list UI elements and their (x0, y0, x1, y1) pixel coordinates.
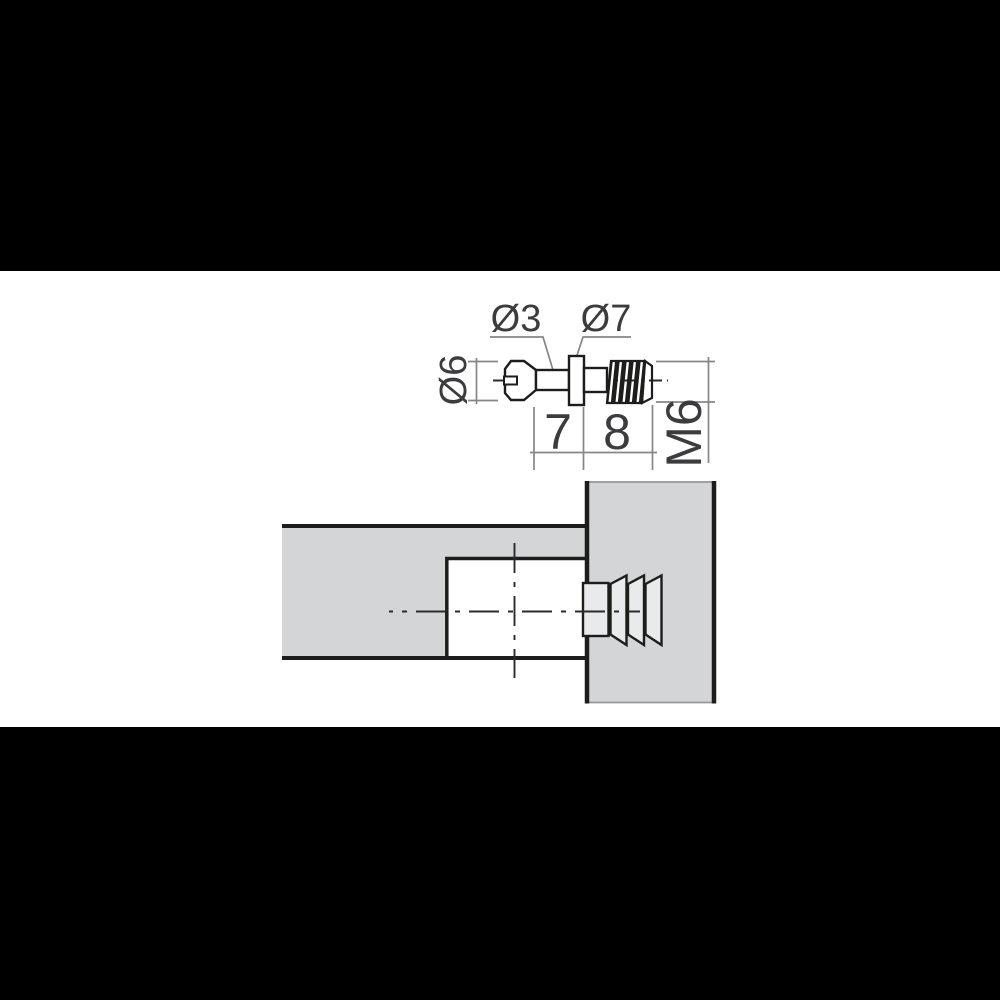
thread-hatching (606, 360, 646, 404)
letterbox-bottom (0, 727, 1000, 1000)
drawing-canvas: Ø3 Ø7 Ø6 7 8 M6 (0, 271, 1000, 727)
technical-drawing: Ø3 Ø7 Ø6 7 8 M6 (0, 271, 1000, 727)
thread-tip (642, 361, 652, 403)
bolt-shank (536, 370, 569, 390)
dim-label-collar-diameter: Ø7 (581, 298, 632, 340)
panel-cavity (447, 557, 585, 658)
dowel-shaft (583, 583, 609, 636)
head-slot (504, 377, 517, 385)
dim-label-shaft-diameter: Ø3 (491, 298, 542, 340)
bolt-shaft (584, 368, 607, 392)
dowel-rib-2 (628, 576, 644, 646)
letterbox-top (0, 0, 1000, 271)
assembly-section-view (282, 481, 716, 704)
dim-label-shank-length: 7 (544, 404, 572, 460)
leader-collar-diameter (577, 337, 632, 357)
bolt-side-view: Ø3 Ø7 Ø6 7 8 M6 (433, 298, 715, 470)
dim-label-head-diameter: Ø6 (433, 355, 475, 406)
installed-dowel (583, 576, 662, 646)
screenshot-stage: Ø3 Ø7 Ø6 7 8 M6 (0, 0, 1000, 1000)
dowel-rib-1 (611, 576, 627, 646)
dim-label-thread-size: M6 (656, 398, 712, 467)
horizontal-panel (282, 524, 585, 658)
dowel-rib-3 (646, 576, 662, 646)
bolt-collar (569, 356, 584, 405)
dim-label-thread-length: 8 (603, 404, 631, 460)
bolt-thread (606, 360, 652, 404)
